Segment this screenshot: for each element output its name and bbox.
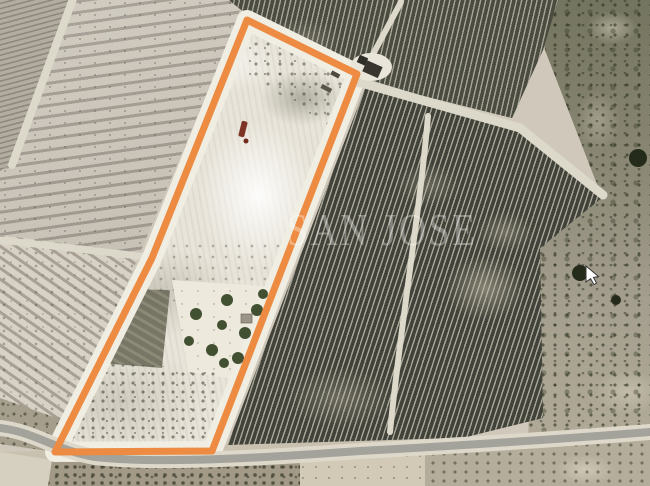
aerial-property-photo: SAN JOSE bbox=[0, 0, 650, 486]
agency-watermark: SAN JOSE bbox=[287, 203, 478, 256]
